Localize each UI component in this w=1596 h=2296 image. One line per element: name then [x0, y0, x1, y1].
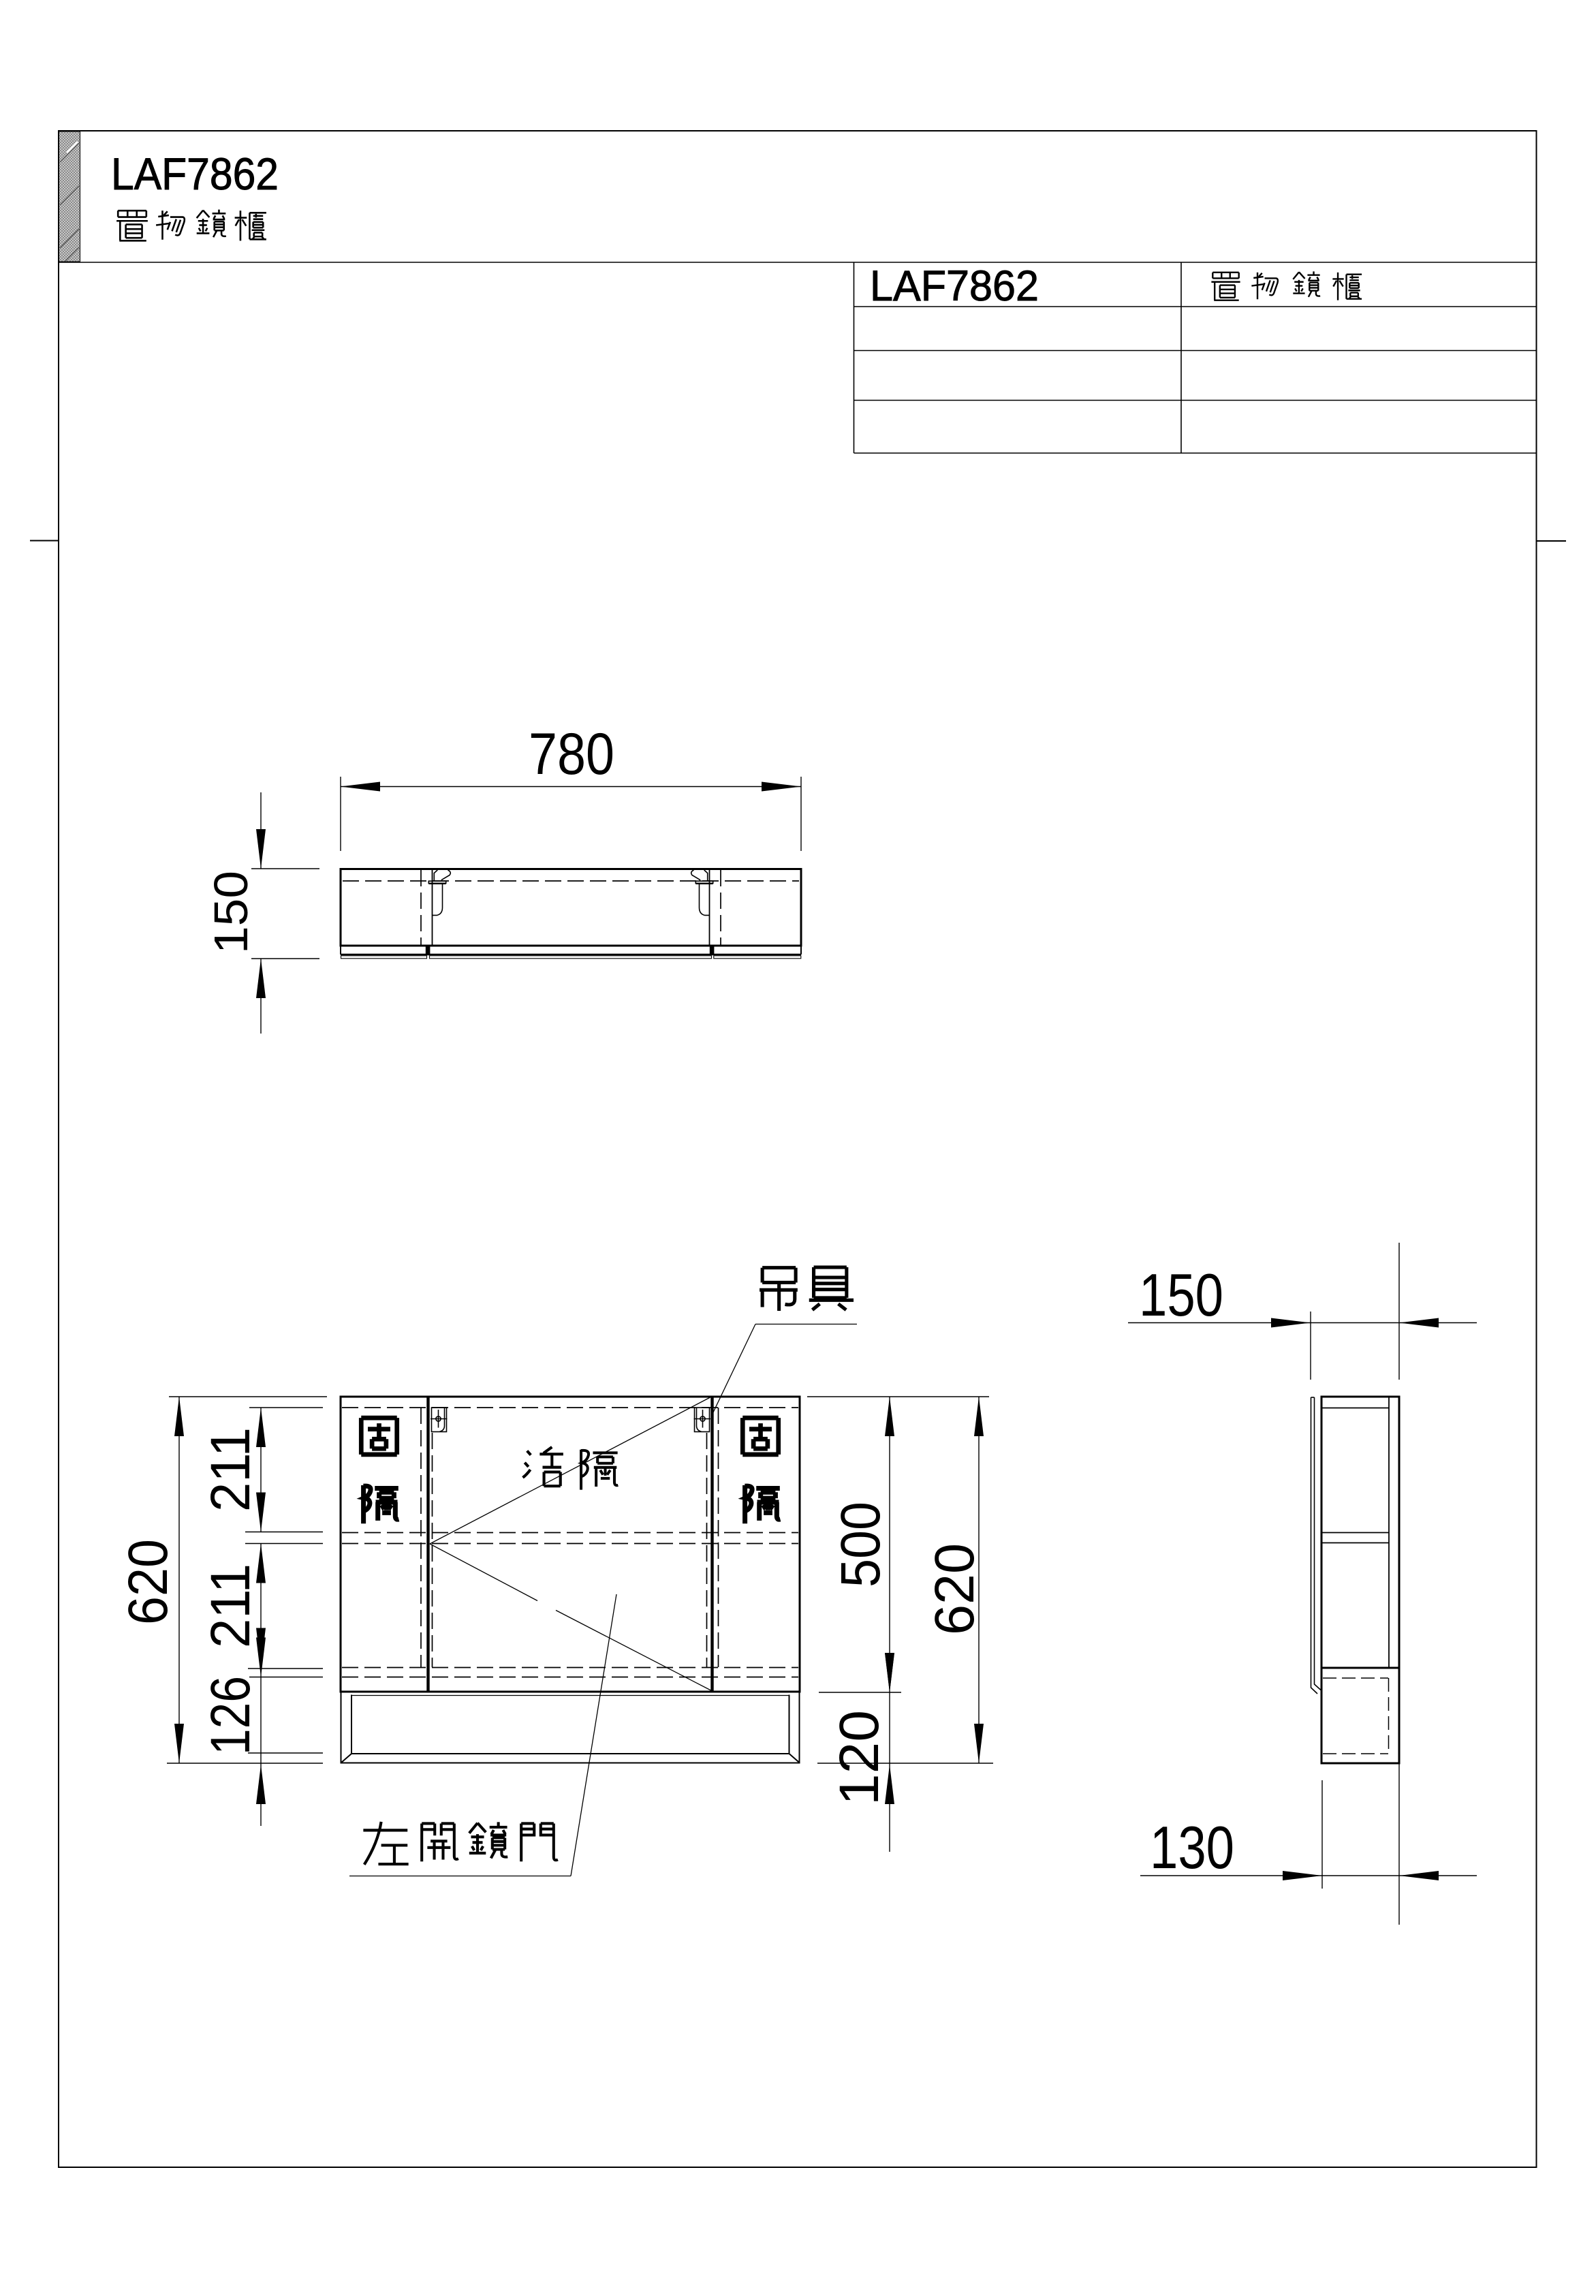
svg-text:211: 211 — [200, 1427, 262, 1512]
svg-text:130: 130 — [1150, 1814, 1234, 1881]
svg-text:LAF7862: LAF7862 — [111, 149, 279, 199]
svg-text:150: 150 — [204, 871, 257, 954]
svg-text:620: 620 — [117, 1539, 179, 1625]
svg-text:620: 620 — [924, 1543, 986, 1635]
svg-text:780: 780 — [529, 722, 614, 787]
svg-text:150: 150 — [1139, 1261, 1223, 1329]
svg-text:500: 500 — [830, 1502, 892, 1587]
svg-text:LAF7862: LAF7862 — [870, 262, 1039, 310]
svg-text:120: 120 — [828, 1710, 890, 1805]
svg-text:126: 126 — [200, 1676, 262, 1755]
svg-text:211: 211 — [200, 1564, 262, 1648]
